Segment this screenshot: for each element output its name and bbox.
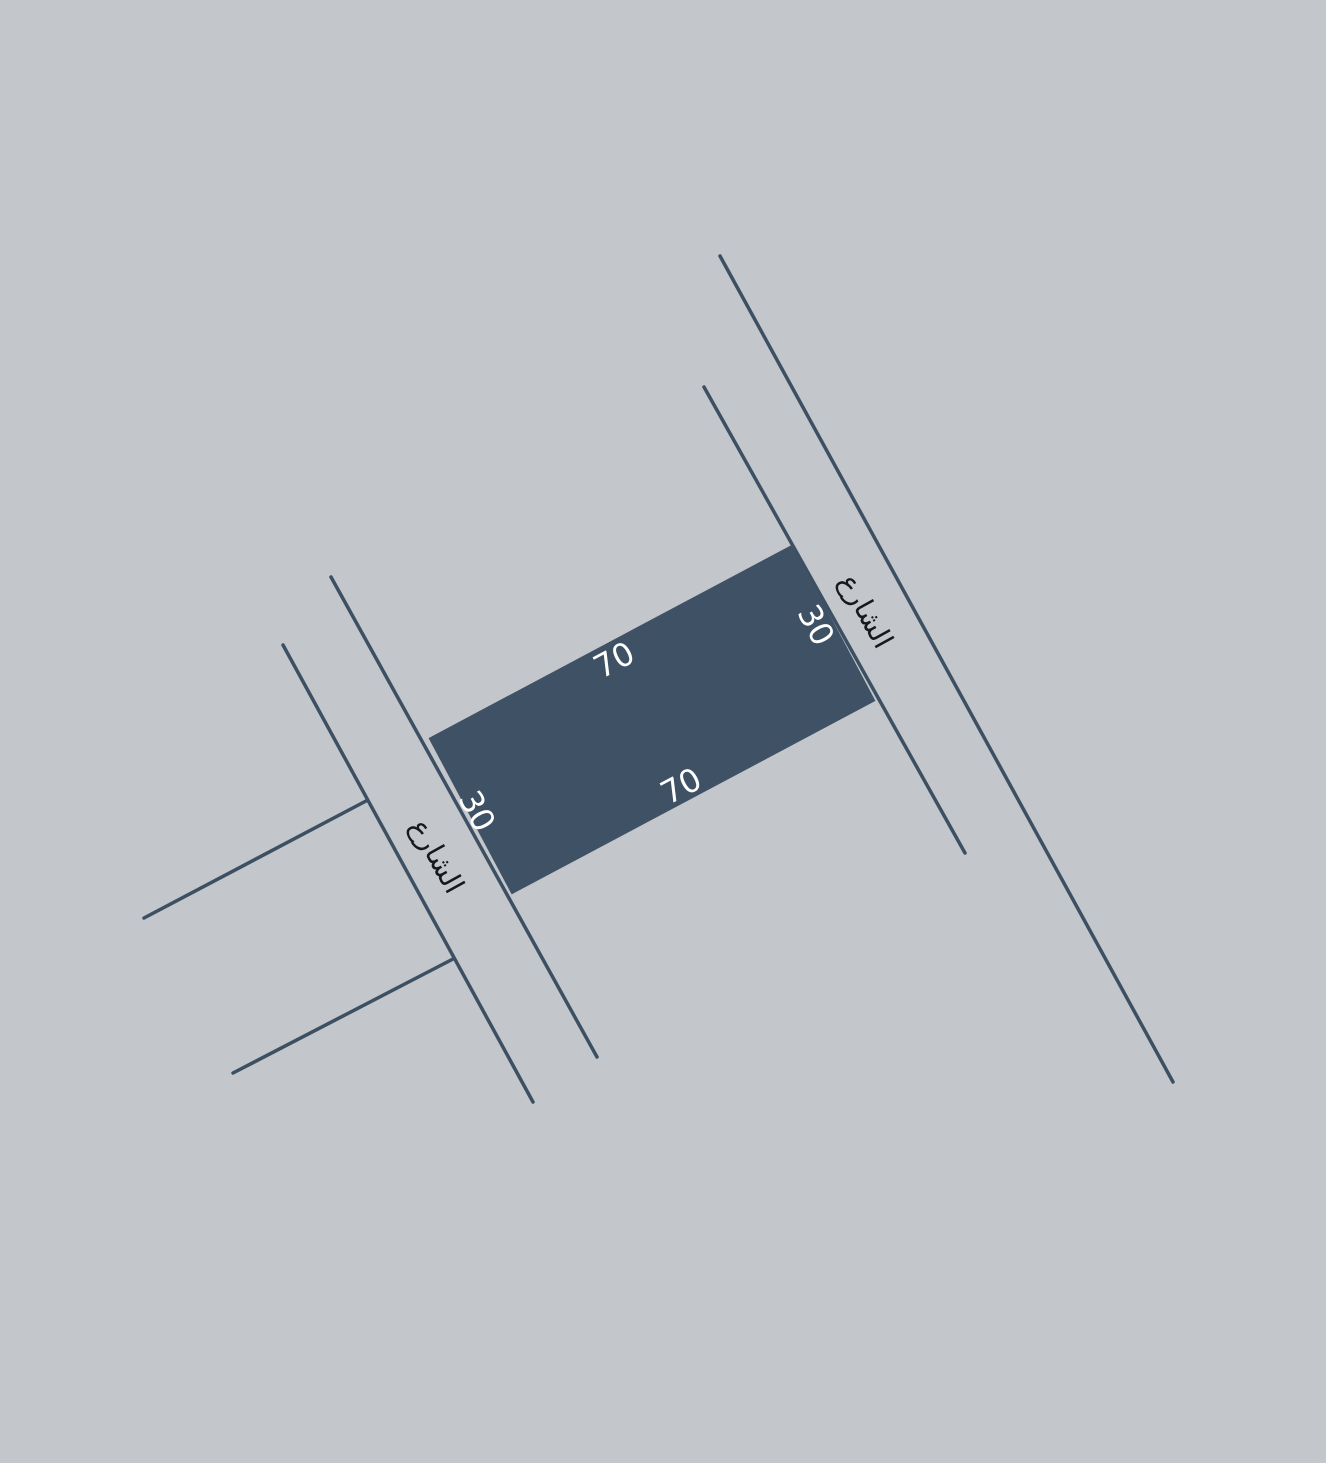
site-plan-svg: 70703030الشارعالشارع (0, 0, 1326, 1463)
site-plan-canvas: 70703030الشارعالشارع (0, 0, 1326, 1463)
